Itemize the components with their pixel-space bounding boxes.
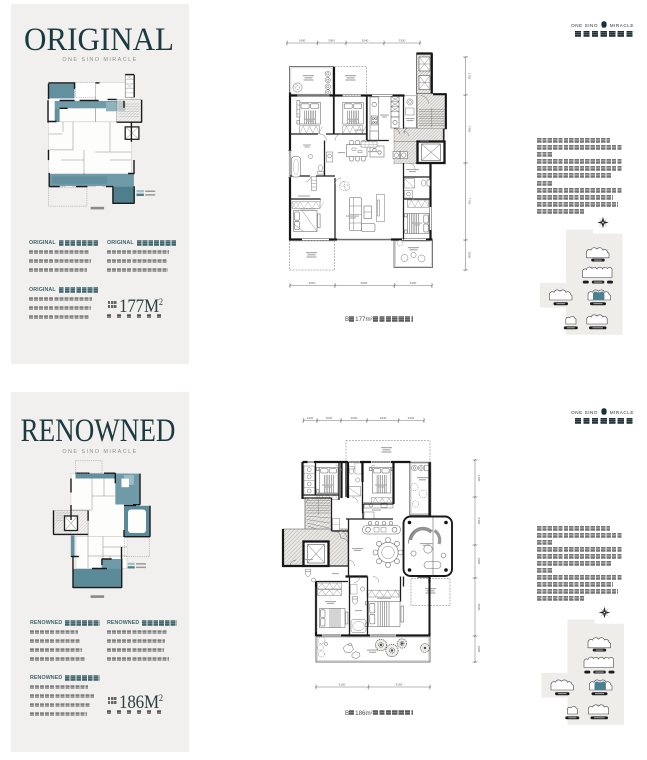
svg-text:6150: 6150 — [396, 683, 403, 687]
svg-text:3000: 3000 — [477, 646, 481, 653]
svg-text:3940: 3940 — [380, 416, 387, 420]
svg-text:3300: 3300 — [399, 39, 406, 43]
svg-text:3900: 3900 — [328, 39, 335, 43]
svg-text:7400: 7400 — [467, 126, 471, 133]
svg-text:7750: 7750 — [467, 198, 471, 205]
svg-text:6050: 6050 — [361, 281, 368, 285]
svg-text:1420: 1420 — [307, 416, 314, 420]
svg-text:3450: 3450 — [410, 281, 417, 285]
svg-text:3040: 3040 — [362, 39, 369, 43]
svg-text:4550: 4550 — [309, 281, 316, 285]
svg-text:1400: 1400 — [299, 39, 306, 43]
svg-text:4150: 4150 — [477, 475, 481, 482]
svg-text:3020: 3020 — [326, 416, 333, 420]
svg-text:6500: 6500 — [477, 604, 481, 611]
svg-text:3800: 3800 — [477, 558, 481, 565]
svg-text:1750: 1750 — [467, 73, 471, 80]
svg-text:5400: 5400 — [477, 518, 481, 525]
svg-text:3420: 3420 — [408, 416, 415, 420]
svg-text:3600: 3600 — [351, 416, 358, 420]
svg-text:5150: 5150 — [339, 683, 346, 687]
svg-text:2900: 2900 — [467, 252, 471, 259]
